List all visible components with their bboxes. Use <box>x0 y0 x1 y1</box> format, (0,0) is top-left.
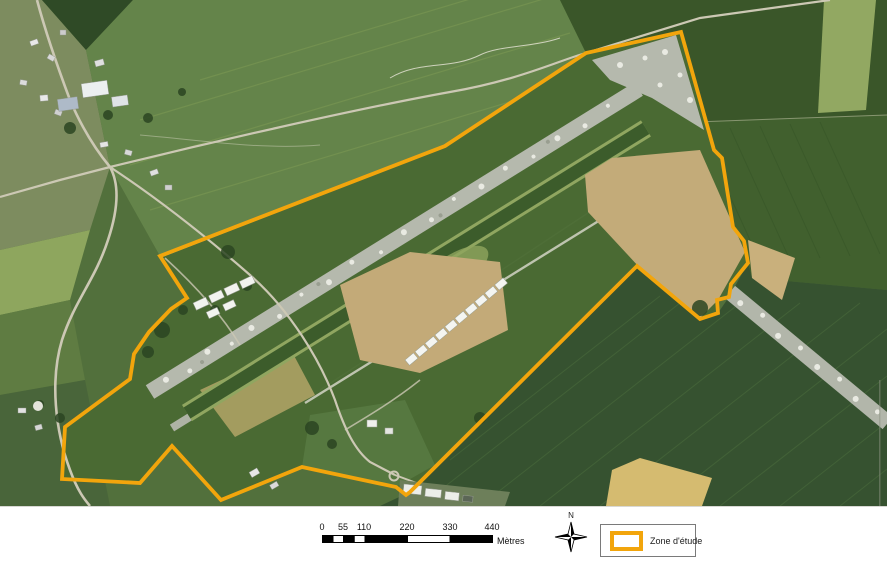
scalebar-tick-label: 110 <box>357 522 371 532</box>
scalebar-unit-label: Mètres <box>497 536 525 546</box>
scalebar-tick-label: 220 <box>399 522 414 532</box>
farm-roof-blue <box>57 97 78 112</box>
legend-item-label: Zone d'étude <box>650 536 702 546</box>
aerial-photo <box>0 0 887 506</box>
aerial-map <box>0 0 887 507</box>
photo-seam <box>879 380 881 506</box>
page: 0 55 110 220 330 440 Mètres N Zone d'étu… <box>0 0 887 564</box>
pond <box>33 401 43 411</box>
building <box>367 420 377 427</box>
building <box>385 428 393 434</box>
north-label: N <box>568 511 574 520</box>
scalebar-tick-label: 330 <box>442 522 457 532</box>
legend: Zone d'étude <box>600 524 696 557</box>
scalebar-bar <box>322 535 494 544</box>
legend-swatch-zone <box>610 531 643 551</box>
north-arrow-icon: N <box>554 506 588 558</box>
scalebar-tick-label: 0 <box>319 522 324 532</box>
scalebar-tick-label: 55 <box>338 522 348 532</box>
scalebar-tick-label: 440 <box>484 522 499 532</box>
